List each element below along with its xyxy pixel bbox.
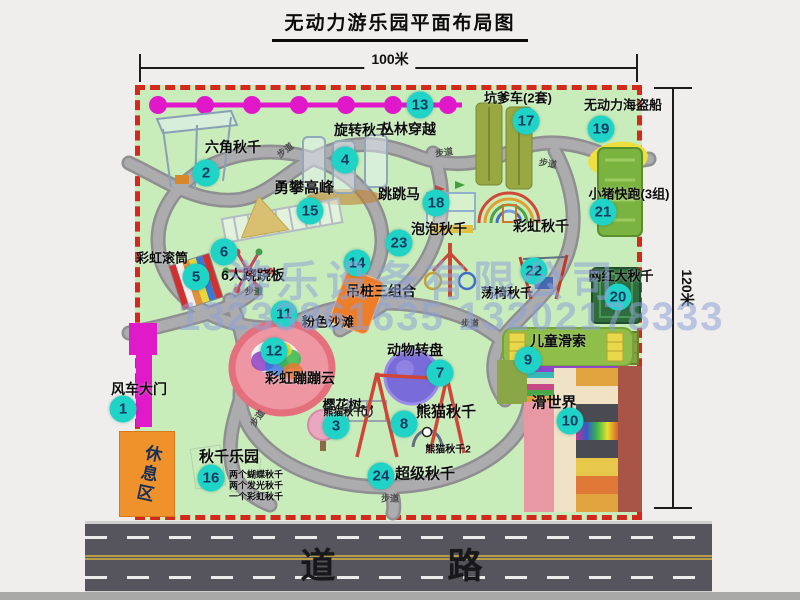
- windmill-gate-top-icon: [129, 323, 157, 355]
- panda-swing2-icon: [413, 428, 442, 448]
- park-layout-screenshot: 无动力游乐园平面布局图 100米 120米: [0, 0, 800, 600]
- zipline-jungle-crossing-icon: [149, 96, 462, 114]
- cherry-tree-icon: [308, 410, 338, 451]
- rest-area: 休息区: [119, 431, 175, 517]
- page-title-wrap: 无动力游乐园平面布局图: [0, 8, 800, 42]
- piggy-run-box-icon: [598, 148, 642, 236]
- place-badge-1: 1: [110, 396, 137, 423]
- rest-area-label: 休息区: [129, 442, 166, 506]
- dimension-tick-right-top: [654, 87, 692, 89]
- page-title: 无动力游乐园平面布局图: [272, 8, 527, 42]
- pit-car-boxes-icon: [476, 103, 532, 189]
- rotating-swing-icon: [303, 135, 387, 205]
- dimension-tick-top-left: [139, 54, 141, 82]
- dimension-tick-top-right: [636, 54, 638, 82]
- windmill-gate-post-icon: [136, 353, 152, 427]
- rainbow-swing-icon: [479, 193, 539, 223]
- watermark-phones: 13233861635 13202178333: [178, 295, 725, 340]
- bottom-edge-strip: [0, 592, 800, 600]
- dimension-label-top: 100米: [364, 49, 415, 69]
- dimension-tick-right-bottom: [654, 507, 692, 509]
- road: 道 路: [85, 521, 712, 594]
- road-label: 道 路: [85, 538, 712, 589]
